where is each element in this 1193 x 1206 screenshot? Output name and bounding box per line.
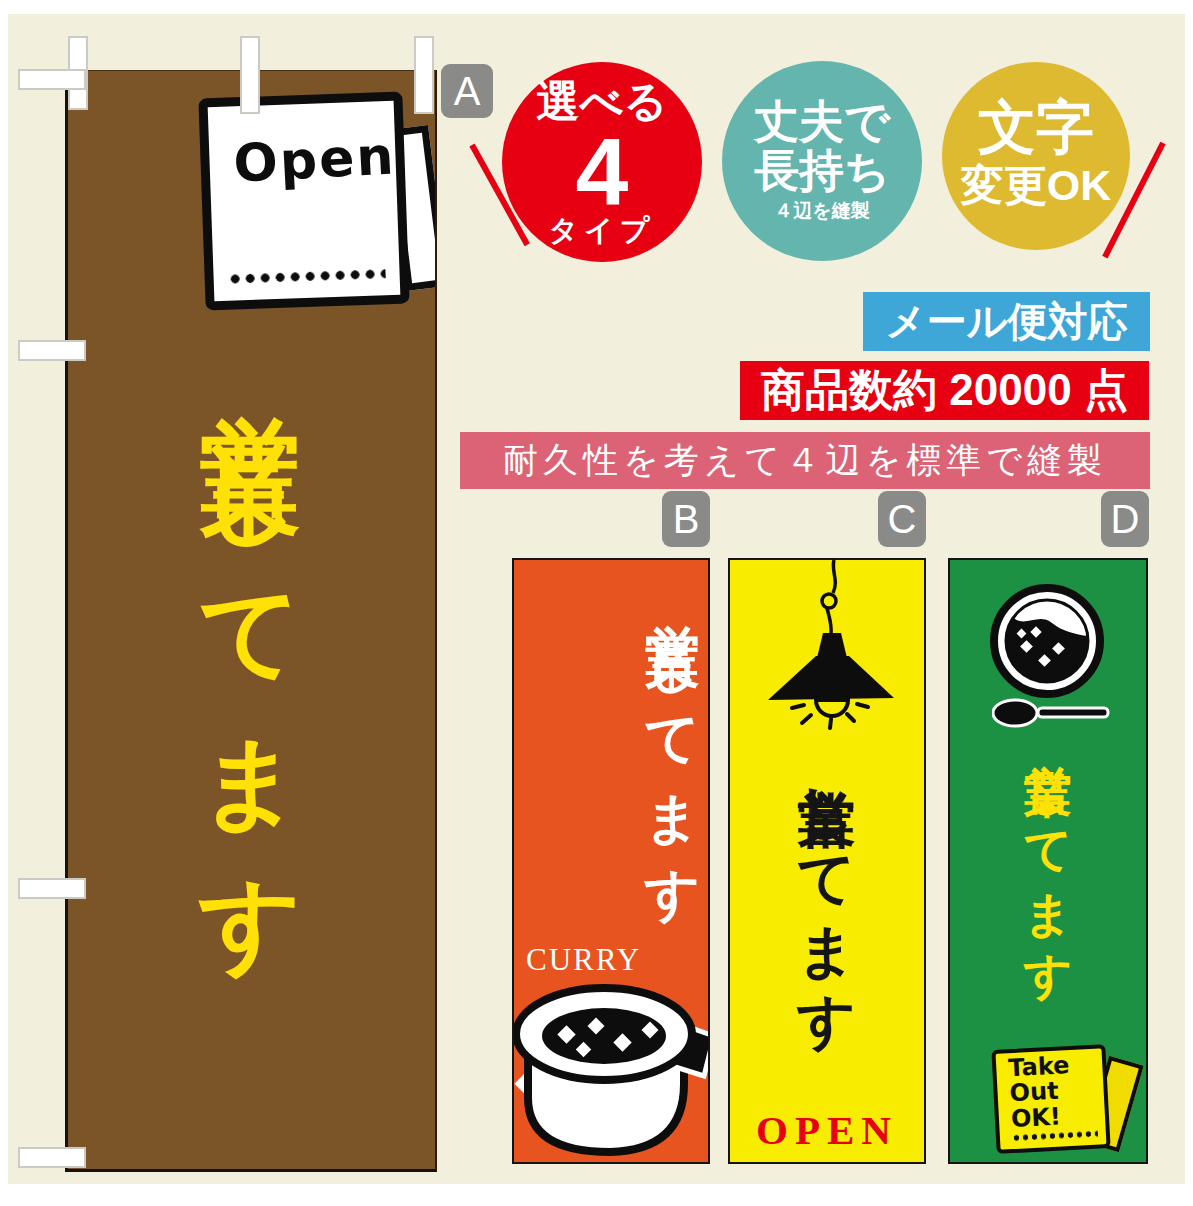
badge-text-change: 文字 変更OK [942, 62, 1130, 250]
curry-pot-icon [512, 980, 710, 1164]
banner-a-vertical-text: 営業してます [201, 333, 302, 946]
open-sign-icon: Open [202, 91, 437, 327]
badge-durable-line1: 丈夫で [754, 98, 890, 147]
banner-b: 営業してます CURRY [512, 558, 710, 1164]
bar-product-count: 商品数約 20000 点 [740, 361, 1149, 420]
tag-b: B [662, 491, 710, 547]
badge-durable: 丈夫で 長持ち ４辺を縫製 [722, 61, 922, 261]
banner-tab-top-2 [240, 36, 260, 114]
banner-d: 営業してます Take Out OK! [948, 558, 1148, 1164]
open-sign-text: Open [232, 125, 397, 193]
spoon-icon [992, 698, 1110, 728]
takeout-line-3: OK! [1010, 1102, 1105, 1132]
badge-custom-line1: 文字 [978, 97, 1094, 158]
banner-tab-left-4 [18, 1147, 86, 1168]
takeout-sign-icon: Take Out OK! [994, 1047, 1128, 1159]
curry-plate-icon [988, 582, 1106, 700]
open-sign-dots [227, 268, 385, 285]
tag-a: A [441, 64, 493, 118]
badge-choose-types: 選べる 4 タイプ [502, 62, 702, 262]
banner-a: Open 営業してます [65, 70, 437, 1172]
banner-tab-left-1 [18, 69, 86, 90]
banner-tab-left-3 [18, 878, 86, 899]
banner-d-vertical-text: 営業してます [1024, 726, 1072, 980]
badge-types-number: 4 [576, 131, 629, 212]
tag-c: C [878, 491, 926, 547]
bar-sewing-note: 耐久性を考えて４辺を標準で縫製 [460, 432, 1150, 489]
badge-custom-line2: 変更OK [961, 157, 1112, 215]
banner-c-vertical-text: 営業してます [798, 742, 856, 1021]
badge-durable-line2: 長持ち [754, 147, 890, 196]
tag-d: D [1101, 491, 1149, 547]
banner-b-vertical-text: 営業してます [645, 580, 700, 904]
banner-tab-left-2 [18, 340, 86, 361]
badge-durable-sub: ４辺を縫製 [774, 198, 869, 224]
takeout-sign-card: Take Out OK! [991, 1044, 1110, 1154]
banner-b-caption: CURRY [526, 942, 641, 978]
banner-tab-top-3 [414, 36, 434, 114]
open-sign-card: Open [198, 92, 409, 311]
product-image: Open 営業してます A B C D 選べる 4 タイプ 丈夫で 長持ち ４辺… [0, 0, 1193, 1206]
badge-types-bottom: タイプ [548, 211, 655, 251]
banner-c-caption: OPEN [730, 1106, 924, 1154]
bar-mail-service: メール便対応 [863, 292, 1150, 351]
banner-c: 営業してます OPEN [728, 558, 926, 1164]
pendant-lamp-icon [730, 560, 926, 730]
